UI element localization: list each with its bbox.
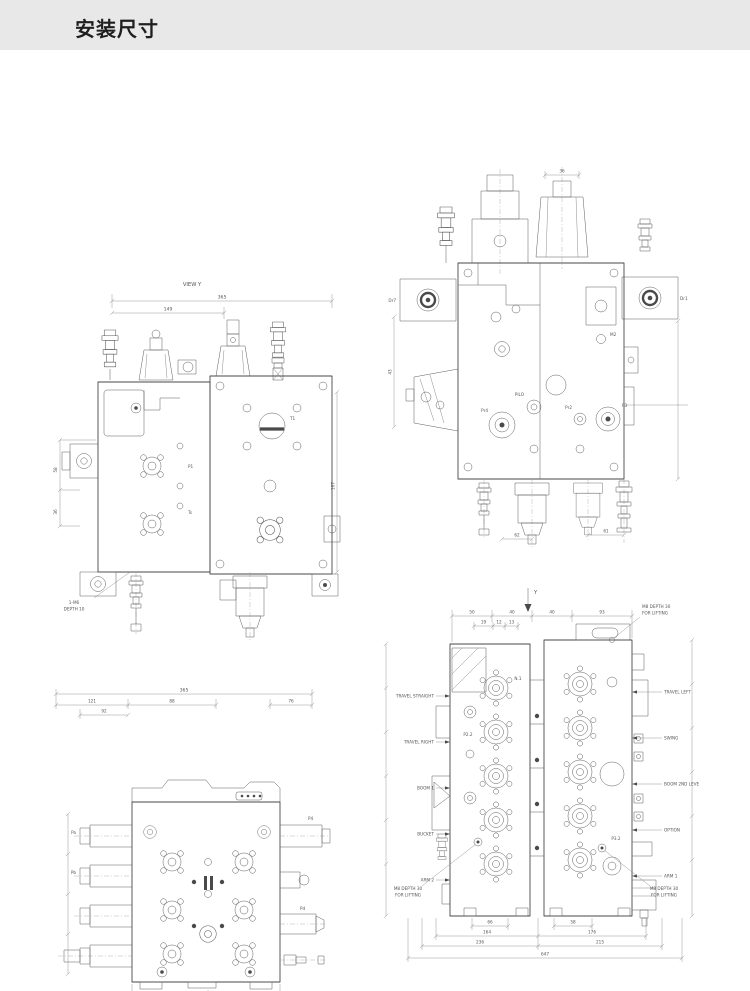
dim-label: 215 — [596, 940, 604, 945]
dim-label: 40 — [509, 610, 515, 615]
bottom-dimensions: 56 88 — [130, 984, 282, 991]
port-label: P1 — [188, 464, 194, 469]
top-dimensions: 50 40 40 93 19 12 13 M8 DEPTH 30 FOR LIF… — [450, 604, 671, 643]
dim-label: 61 — [603, 529, 609, 534]
drawing-top-view: Y 50 40 40 93 19 12 13 M8 DEPTH 30 FOR L… — [378, 584, 700, 970]
dim-label: 12 — [496, 620, 502, 625]
note-label: 1-M6 — [69, 600, 80, 605]
dim-label: 167 — [331, 482, 336, 490]
port-label: P2.2 — [463, 732, 473, 737]
drawing-sheet: VIEW Y 365 149 58 36 167 — [0, 50, 750, 991]
port-label: P4 — [308, 816, 314, 821]
dim-label: 76 — [288, 699, 294, 704]
note-label: M8 DEPTH 30 — [394, 886, 423, 891]
function-labels-left: TRAVEL STRAIGHT TRAVEL RIGHT BOOM 1 BUCK… — [395, 694, 450, 883]
port-label: M2 — [610, 332, 617, 337]
left-actuators — [58, 825, 132, 967]
dim-label: 58 — [53, 467, 58, 473]
note-label: FOR LIFTING — [651, 893, 677, 898]
port-label: Pr2 — [565, 405, 572, 410]
dim-label: 58 — [570, 920, 576, 925]
dim-label: 66 — [487, 920, 493, 925]
function-label: TRAVEL STRAIGHT — [395, 694, 435, 699]
port-labels: Dr7 Dr1 M2 PiLO Pr4 Pr2 P3 — [388, 296, 688, 413]
dim-label: 40 — [549, 610, 555, 615]
section-header: 安装尺寸 — [0, 0, 750, 50]
bottom-notes: M8 DEPTH 30 FOR LIFTING M8 DEPTH 30 FOR … — [394, 844, 679, 898]
drawing-multi-section-view: 365 121 88 76 92 — [38, 684, 330, 980]
dim-label: 176 — [588, 930, 596, 935]
port-label: PiLO — [515, 392, 525, 397]
drawing-front-view: VIEW Y 365 149 58 36 167 — [40, 274, 340, 644]
drawing-side-view: 36 43 — [382, 165, 694, 550]
right-actuators — [280, 825, 330, 965]
bottom-cartridges — [477, 479, 632, 547]
port-label: P3.2 — [611, 836, 621, 841]
port-label: Pr4 — [481, 408, 488, 413]
function-label: SWING — [664, 736, 678, 741]
function-labels-right: TRAVEL LEFT SWING BOOM 2ND LEVE OPTION A… — [632, 690, 700, 879]
dim-label: 149 — [164, 307, 173, 313]
dim-label: 92 — [101, 709, 107, 714]
valve-body — [62, 376, 340, 596]
dim-label: 50 — [469, 610, 475, 615]
function-label: TRAVEL RIGHT — [403, 740, 435, 745]
note-label: FOR LIFTING — [642, 611, 668, 616]
port-label: T1 — [289, 416, 296, 421]
note-label: FOR LIFTING — [395, 893, 421, 898]
dimension-lines: 365 149 58 36 167 — [53, 294, 339, 598]
bottom-dimensions: 62 61 — [500, 529, 626, 542]
note-label: DEPTH 10 — [64, 607, 85, 612]
solenoid-valves — [102, 320, 286, 380]
dimension-lines: 36 43 — [388, 169, 689, 482]
section-title: 安装尺寸 — [0, 0, 750, 42]
port-labels: P2.2 N.1 P3.2 — [463, 676, 621, 841]
port-label: P3 — [622, 403, 628, 408]
dim-label: 88 — [169, 699, 175, 704]
port-label: Pb — [71, 870, 77, 875]
dim-label: 236 — [476, 940, 484, 945]
function-label: BOOM 1 — [417, 786, 434, 791]
function-label: ARM 1 — [664, 874, 678, 879]
function-label: BOOM 2ND LEVE — [664, 782, 700, 787]
bottom-dimensions: 66 58 164 176 236 215 647 — [406, 918, 684, 962]
solenoid-valves — [438, 167, 652, 275]
function-label: BUCKET — [417, 832, 434, 837]
dim-label: 93 — [599, 610, 605, 615]
view-label: Y — [533, 590, 538, 596]
valve-body — [400, 263, 678, 479]
note-label: M8 DEPTH 30 — [642, 604, 671, 609]
dim-label: 43 — [388, 369, 393, 375]
dim-label: 365 — [180, 688, 189, 694]
dimension-lines: 365 121 88 76 92 — [54, 688, 314, 977]
dim-label: 647 — [541, 952, 549, 957]
port-label: Pa — [71, 830, 76, 835]
dim-label: 36 — [53, 509, 58, 515]
function-label: OPTION — [664, 828, 680, 833]
dim-label: 121 — [88, 699, 96, 704]
view-arrow: Y — [525, 588, 539, 612]
view-label: VIEW Y — [183, 282, 202, 288]
dim-label: 19 — [481, 620, 487, 625]
port-label: Ts — [187, 510, 192, 515]
note-label: M8 DEPTH 30 — [650, 886, 679, 891]
port-label: Dr1 — [680, 296, 688, 301]
port-label: N.1 — [514, 676, 521, 681]
port-labels: Pa Pb P4 Pd — [71, 816, 314, 911]
port-label: Dr7 — [388, 298, 396, 303]
dim-label: 13 — [509, 620, 515, 625]
dim-label: 365 — [218, 295, 227, 301]
valve-body — [432, 624, 656, 926]
bottom-cartridges — [129, 572, 267, 642]
port-label: Pd — [300, 906, 306, 911]
function-label: TRAVEL LEFT — [663, 690, 691, 695]
valve-body — [132, 780, 280, 989]
dim-label: 164 — [483, 930, 491, 935]
dim-label: 62 — [514, 533, 520, 538]
